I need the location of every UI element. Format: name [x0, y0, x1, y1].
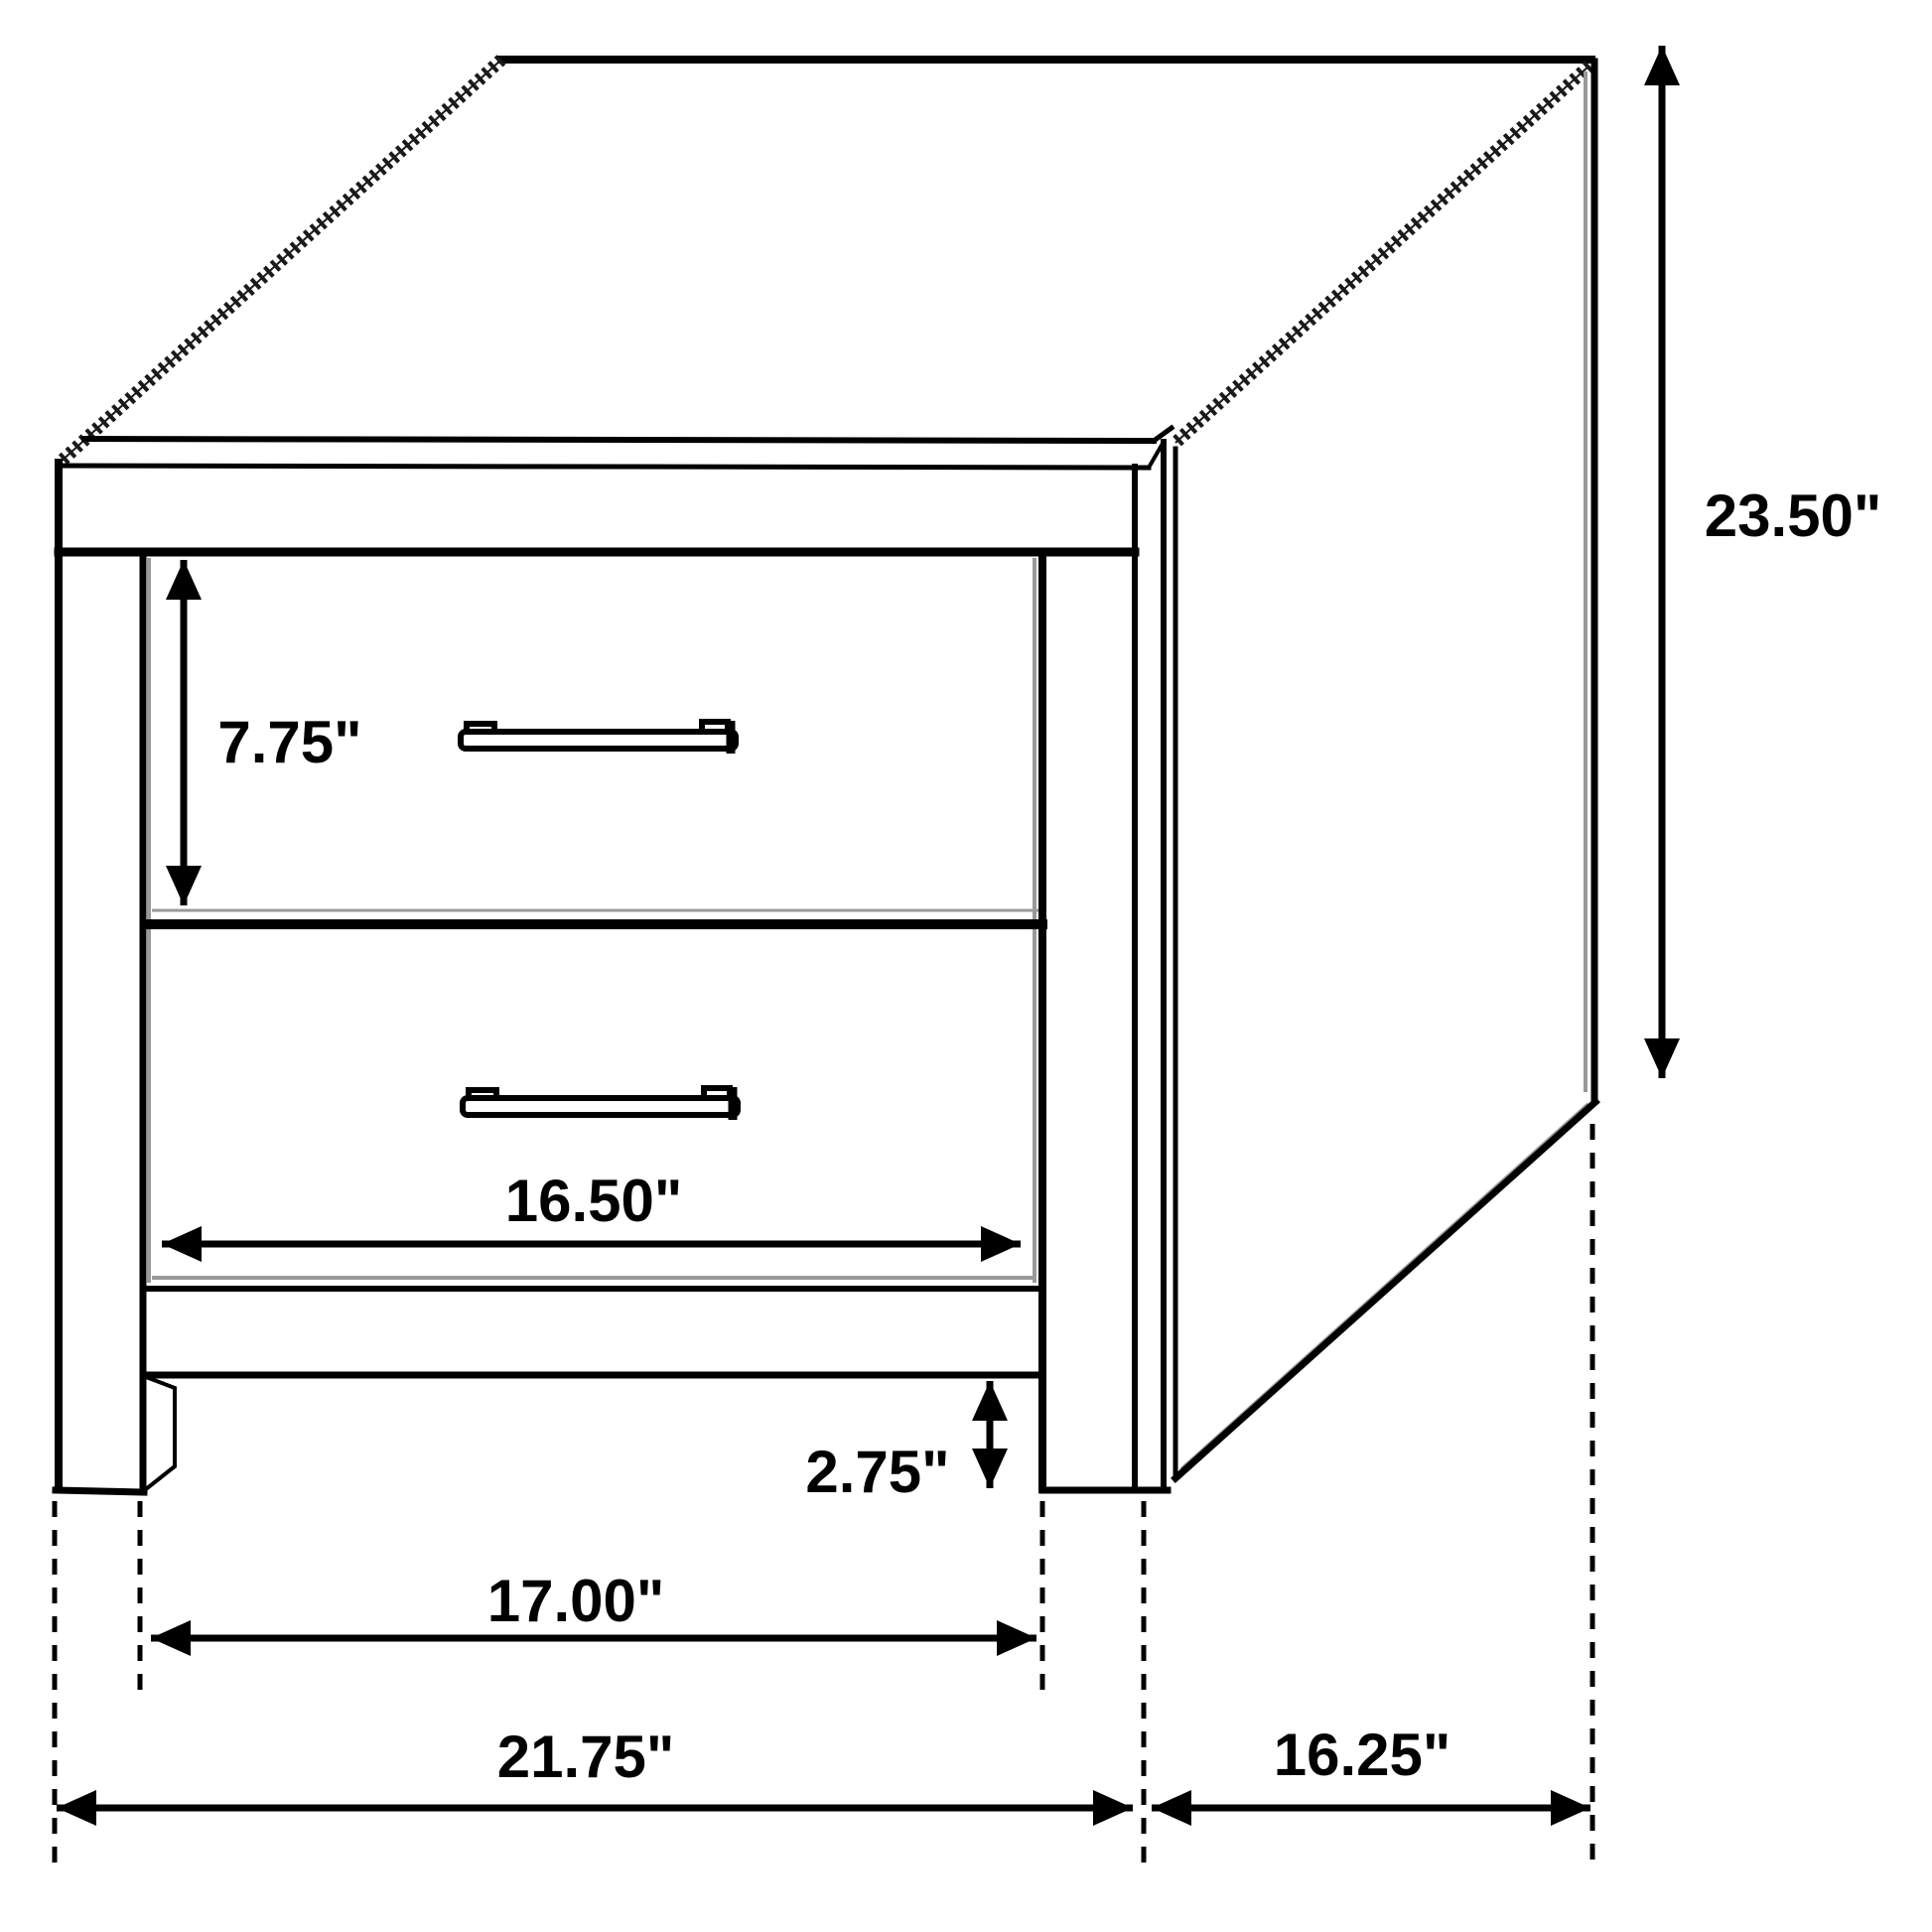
dimension-diagram-canvas: 23.50" 7.75" 16.50" 2.75" 17.00" 21.75" …	[0, 0, 1932, 1932]
top-right-slant-edge	[1175, 66, 1589, 443]
top-face	[59, 60, 1591, 464]
side-bottom-edge	[1175, 1102, 1595, 1478]
dim-label-side-depth: 16.25"	[1274, 1722, 1451, 1788]
top-band-lower-edge	[61, 466, 1149, 468]
dim-label-overall-height: 23.50"	[1705, 483, 1882, 549]
left-leg-inner-face	[146, 1377, 175, 1489]
drawer-top-handle-icon	[461, 721, 736, 754]
front-frame	[56, 442, 1168, 1492]
drawer-bottom-handle-icon	[463, 1087, 738, 1120]
drawer-bottom	[463, 1087, 738, 1120]
left-leg-bottom	[56, 1490, 144, 1492]
top-left-slant-edge	[59, 60, 501, 464]
dim-label-drawer-width: 16.50"	[505, 1168, 683, 1234]
nightstand-dimension-diagram: 23.50" 7.75" 16.50" 2.75" 17.00" 21.75" …	[0, 0, 1932, 1932]
dim-label-foot-height: 2.75"	[805, 1439, 949, 1505]
top-front-edge	[84, 439, 1154, 441]
drawer-top	[461, 721, 736, 754]
dim-label-leg-opening-width: 17.00"	[487, 1568, 665, 1634]
dim-label-overall-width: 21.75"	[497, 1724, 675, 1790]
dim-label-top-drawer-height: 7.75"	[217, 709, 361, 775]
side-panel	[1175, 62, 1595, 1478]
